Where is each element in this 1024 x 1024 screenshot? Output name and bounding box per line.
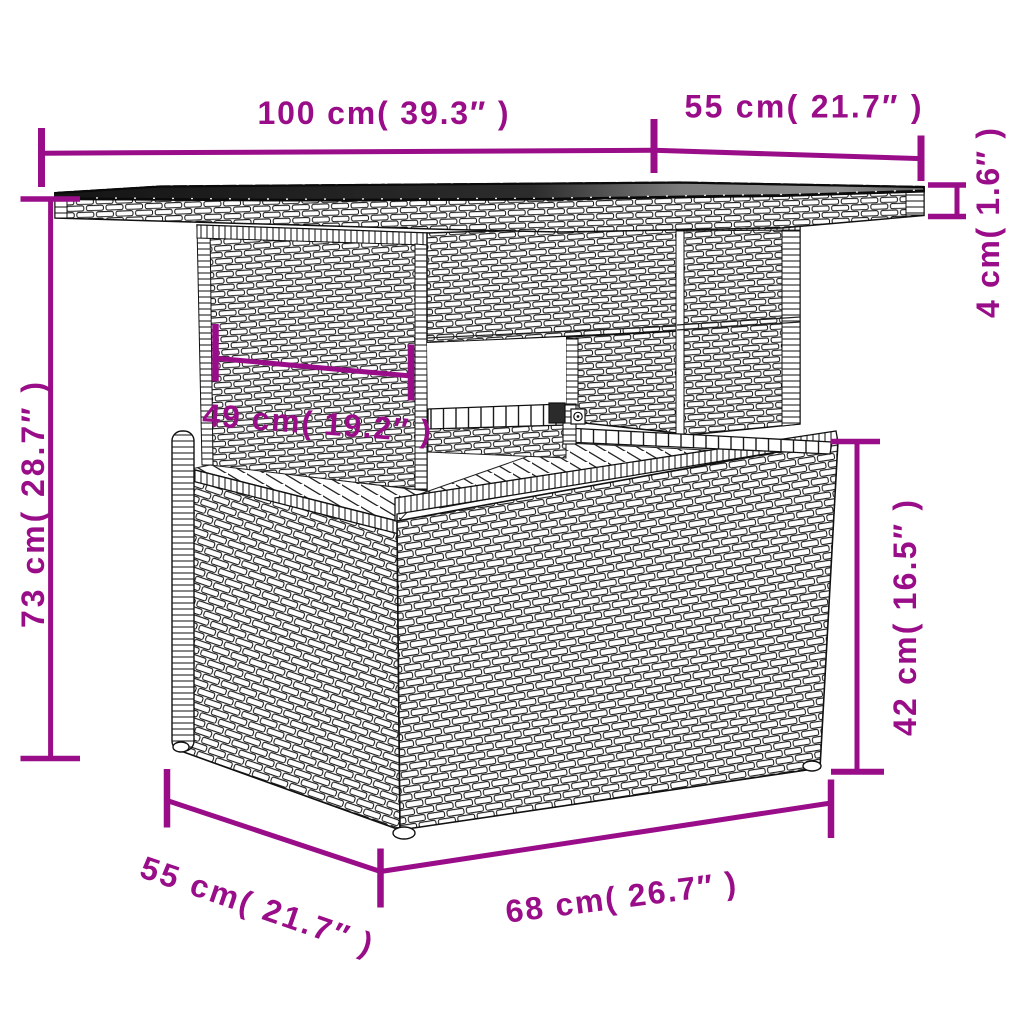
- svg-text:42 cm( 16.5″ ): 42 cm( 16.5″ ): [887, 500, 923, 736]
- svg-text:55 cm( 21.7″ ): 55 cm( 21.7″ ): [685, 89, 922, 125]
- svg-text:73 cm( 28.7″ ): 73 cm( 28.7″ ): [15, 382, 51, 628]
